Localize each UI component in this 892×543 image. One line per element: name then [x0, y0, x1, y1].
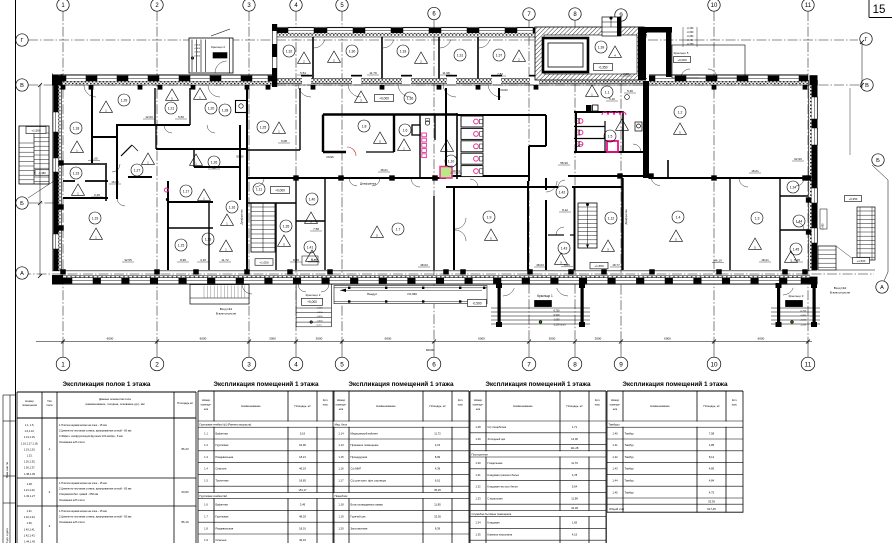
- svg-text:1.30: 1.30: [475, 461, 481, 465]
- svg-text:Тамбур: Тамбур: [625, 431, 635, 435]
- svg-text:А: А: [20, 271, 24, 277]
- svg-text:С/у ММГ: С/у ММГ: [351, 467, 362, 471]
- svg-text:617,45: 617,45: [707, 507, 716, 511]
- svg-text:-1,480: -1,480: [822, 223, 825, 230]
- svg-text:Процедурная: Процедурная: [351, 455, 368, 459]
- svg-text:+0,000: +0,000: [789, 302, 799, 306]
- svg-text:1.31: 1.31: [457, 53, 464, 57]
- svg-text:18,01: 18,01: [299, 526, 306, 530]
- svg-text:18,01: 18,01: [751, 169, 759, 173]
- svg-text:-1,200: -1,200: [800, 324, 807, 326]
- svg-text:-0,600: -0,600: [687, 39, 694, 42]
- svg-text:12,00: 12,00: [145, 115, 153, 119]
- svg-text:11,85: 11,85: [434, 503, 441, 507]
- svg-text:Г: Г: [864, 37, 867, 43]
- svg-text:18,77: 18,77: [612, 263, 620, 267]
- svg-text:ния: ния: [339, 408, 344, 411]
- svg-text:1.41: 1.41: [307, 245, 314, 249]
- svg-text:1.2: 1.2: [678, 110, 683, 114]
- svg-text:СМ16: СМ16: [326, 155, 334, 159]
- svg-text:1,65: 1,65: [572, 521, 578, 525]
- svg-text:16,66: 16,66: [111, 180, 119, 184]
- svg-text:+0,000: +0,000: [379, 96, 389, 100]
- svg-text:1.26,1.35,: 1.26,1.35,: [24, 460, 36, 464]
- svg-text:1.6: 1.6: [403, 128, 408, 132]
- svg-text:Пандус: Пандус: [367, 292, 378, 296]
- svg-text:Экспликация помещений 1 этажа: Экспликация помещений 1 этажа: [348, 380, 454, 388]
- svg-text:18,01: 18,01: [380, 168, 388, 172]
- svg-text:Крыльцо 4: Крыльцо 4: [211, 45, 225, 49]
- svg-text:11: 11: [805, 3, 812, 9]
- svg-text:Стиральная: Стиральная: [488, 497, 504, 501]
- svg-text:Групповая ячейка №1 (Раннего в: Групповая ячейка №1 (Раннего возраста): [200, 423, 252, 427]
- svg-text:1.20: 1.20: [208, 106, 215, 110]
- svg-text:1.34: 1.34: [475, 521, 481, 525]
- svg-text:-0,150: -0,150: [194, 45, 201, 47]
- svg-text:6000: 6000: [107, 337, 114, 341]
- svg-text:1.34: 1.34: [790, 185, 797, 189]
- svg-text:Номер: Номер: [202, 398, 211, 402]
- svg-text:1.36: 1.36: [407, 96, 414, 100]
- svg-text:32,55: 32,55: [434, 515, 441, 519]
- svg-text:Групповая ячейка №2: Групповая ячейка №2: [200, 494, 228, 498]
- svg-text:Кладовая: Кладовая: [488, 521, 501, 525]
- svg-text:1.18: 1.18: [73, 126, 80, 130]
- svg-text:8: 8: [573, 361, 577, 368]
- svg-text:5,54: 5,54: [300, 71, 306, 75]
- svg-text:5,50: 5,50: [178, 115, 184, 119]
- svg-text:1.13: 1.13: [205, 237, 212, 241]
- svg-text:8,12: 8,12: [709, 455, 715, 459]
- svg-text:1.27: 1.27: [134, 168, 141, 172]
- svg-text:3.Эйфол- изофрусоляция Щучинок: 3.Эйфол- изофрусоляция Щучинок 100 мойра…: [59, 434, 123, 438]
- svg-text:Площадь, м²: Площадь, м²: [430, 404, 446, 408]
- svg-text:Раздевальная: Раздевальная: [216, 455, 234, 459]
- svg-text:5,36: 5,36: [627, 89, 633, 93]
- svg-text:3000: 3000: [316, 337, 323, 341]
- svg-text:-0,750: -0,750: [553, 311, 560, 313]
- svg-text:5,54: 5,54: [572, 485, 578, 489]
- svg-text:5,85: 5,85: [311, 258, 317, 262]
- svg-text:Постирочная: Постирочная: [472, 452, 489, 456]
- svg-text:Площадь, м²: Площадь, м²: [295, 404, 311, 408]
- svg-text:1.2: 1.2: [204, 443, 208, 447]
- svg-text:+1,500: +1,500: [31, 128, 41, 132]
- svg-text:10: 10: [711, 3, 718, 9]
- svg-text:Основание ж/б плита: Основание ж/б плита: [59, 440, 85, 444]
- svg-text:Площадь,м²: Площадь,м²: [177, 401, 193, 405]
- svg-text:Диафрагма: Диафрагма: [624, 209, 628, 224]
- svg-text:ния: ния: [204, 408, 209, 411]
- svg-text:Крыльцо 5: Крыльцо 5: [674, 51, 689, 55]
- svg-text:1.4: 1.4: [204, 467, 208, 471]
- svg-text:Групповая: Групповая: [216, 515, 229, 519]
- svg-text:62,96: 62,96: [794, 157, 802, 161]
- svg-text:Буфетная: Буфетная: [216, 431, 229, 435]
- svg-text:35,26: 35,26: [434, 488, 441, 492]
- svg-text:18,21: 18,21: [761, 258, 769, 262]
- svg-text:Данные элементов пола: Данные элементов пола: [99, 397, 131, 401]
- svg-text:СМ10: СМ10: [500, 88, 508, 92]
- svg-text:+0,000: +0,000: [307, 300, 317, 304]
- svg-text:ния: ния: [613, 408, 618, 411]
- svg-text:7,82: 7,82: [497, 72, 503, 76]
- svg-text:58,39: 58,39: [560, 161, 568, 165]
- svg-text:7,58: 7,58: [313, 227, 319, 231]
- svg-text:1.6,1.10,: 1.6,1.10,: [24, 429, 34, 433]
- svg-text:4,75: 4,75: [709, 490, 715, 494]
- svg-text:В виктопольне: В виктопольне: [830, 291, 851, 295]
- svg-text:1.1: 1.1: [204, 431, 208, 435]
- svg-text:Тамбур: Тамбур: [625, 443, 635, 447]
- svg-text:-0,900: -0,900: [553, 315, 560, 317]
- svg-text:11,72: 11,72: [434, 431, 441, 435]
- svg-text:10,74: 10,74: [452, 169, 460, 173]
- svg-text:-1,050: -1,050: [800, 320, 807, 322]
- svg-text:Спальня: Спальня: [216, 467, 227, 471]
- svg-text:Блок охлаждаемых камер: Блок охлаждаемых камер: [351, 503, 384, 507]
- svg-text:3000: 3000: [269, 337, 276, 341]
- svg-text:1.4: 1.4: [676, 215, 681, 219]
- svg-text:помещения: помещения: [22, 403, 37, 407]
- svg-text:Кол.: Кол.: [732, 398, 738, 402]
- svg-text:Служебно-бытовые помещения: Служебно-бытовые помещения: [472, 512, 512, 516]
- svg-text:1.29: 1.29: [475, 437, 481, 441]
- svg-text:48,03: 48,03: [299, 515, 306, 519]
- svg-text:7,58: 7,58: [709, 431, 715, 435]
- svg-text:Мед. блок: Мед. блок: [335, 423, 348, 427]
- svg-text:11,05: 11,05: [90, 157, 98, 161]
- svg-text:Г: Г: [20, 38, 23, 44]
- svg-text:Тамбуры: Тамбуры: [609, 423, 620, 427]
- svg-text:-0,900: -0,900: [800, 315, 807, 317]
- svg-text:+0,950: +0,950: [849, 197, 858, 201]
- svg-text:1.Плитка керамическая на клее: 1.Плитка керамическая на клее - 15 мм: [59, 481, 107, 485]
- svg-text:1.43: 1.43: [612, 467, 618, 471]
- svg-text:Тамбур: Тамбур: [625, 455, 635, 459]
- svg-text:1.32: 1.32: [475, 485, 481, 489]
- svg-text:2.Цементно-песчаная стяжка, ар: 2.Цементно-песчаная стяжка, армированная…: [59, 487, 132, 491]
- svg-text:-0,500: -0,500: [472, 301, 481, 305]
- svg-text:1,71: 1,71: [572, 425, 578, 429]
- svg-text:+0,000: +0,000: [677, 58, 687, 62]
- svg-text:пом.: пом.: [458, 404, 464, 407]
- svg-text:С/у для прип. физ. раствора: С/у для прип. физ. раствора: [351, 479, 387, 483]
- svg-text:Кладовая чистого белья: Кладовая чистого белья: [488, 485, 519, 489]
- svg-text:1.16: 1.16: [229, 205, 236, 209]
- svg-text:1.42,1.43,: 1.42,1.43,: [24, 533, 36, 537]
- svg-text:1.44,1.45: 1.44,1.45: [24, 540, 35, 543]
- svg-text:1.5: 1.5: [204, 479, 208, 483]
- svg-text:1.3: 1.3: [204, 455, 208, 459]
- svg-text:2.Цементно-песчаная стяжка, ар: 2.Цементно-песчаная стяжка, армированная…: [59, 429, 132, 433]
- svg-text:-0,750: -0,750: [687, 43, 694, 46]
- svg-text:1.45: 1.45: [612, 490, 618, 494]
- svg-text:4,78: 4,78: [572, 473, 578, 477]
- svg-text:11,98: 11,98: [571, 497, 578, 501]
- svg-text:3,49: 3,49: [300, 503, 306, 507]
- svg-text:Основание ж/б плита: Основание ж/б плита: [59, 520, 85, 524]
- svg-text:4,15: 4,15: [572, 533, 578, 537]
- svg-text:Наименование: Наименование: [513, 404, 533, 408]
- svg-text:1.40: 1.40: [309, 197, 316, 201]
- svg-text:-0,480: -0,480: [38, 171, 46, 175]
- svg-text:1.17: 1.17: [183, 189, 190, 193]
- svg-text:1.23: 1.23: [73, 171, 80, 175]
- svg-text:-0,300: -0,300: [317, 312, 324, 314]
- svg-text:1.35: 1.35: [475, 533, 481, 537]
- svg-text:Медицинский кабинет: Медицинский кабинет: [351, 431, 379, 435]
- svg-text:1.19: 1.19: [92, 216, 99, 220]
- svg-text:-0,450: -0,450: [194, 52, 201, 54]
- svg-text:1.9: 1.9: [204, 538, 208, 542]
- svg-text:(наименование, толщина, основа: (наименование, толщина, основание др.), …: [85, 402, 144, 406]
- svg-text:18,65: 18,65: [299, 479, 306, 483]
- svg-text:1.19: 1.19: [338, 515, 344, 519]
- svg-text:Кол.: Кол.: [323, 398, 329, 402]
- svg-text:2.Цементно-песчаная стяжка, ар: 2.Цементно-песчаная стяжка, армированная…: [59, 515, 132, 519]
- svg-text:-0,600: -0,600: [194, 55, 201, 57]
- svg-text:4,15: 4,15: [200, 258, 206, 262]
- svg-text:Тамбур: Тамбур: [625, 467, 635, 471]
- svg-text:Б: Б: [20, 201, 24, 207]
- svg-text:1.25: 1.25: [260, 125, 267, 129]
- svg-text:1.26: 1.26: [211, 160, 218, 164]
- svg-text:3000: 3000: [595, 337, 602, 341]
- svg-text:1.28: 1.28: [475, 425, 481, 429]
- svg-text:-0,750: -0,750: [800, 311, 807, 313]
- svg-text:111,28: 111,28: [571, 446, 579, 450]
- svg-text:Площадь, м²: Площадь, м²: [704, 404, 720, 408]
- svg-text:Номер: Номер: [337, 398, 346, 402]
- svg-text:8,12: 8,12: [562, 208, 568, 212]
- svg-text:6: 6: [432, 361, 436, 368]
- svg-text:Буфетная: Буфетная: [216, 503, 229, 507]
- svg-text:Тамбур: Тамбур: [625, 479, 635, 483]
- svg-text:3.Керамзитобет. гравий - 650 м: 3.Керамзитобет. гравий - 650 мм: [59, 492, 98, 496]
- svg-text:6,01: 6,01: [435, 479, 441, 483]
- svg-text:1.33: 1.33: [400, 49, 407, 53]
- svg-text:Крыльцо 3: Крыльцо 3: [789, 294, 804, 298]
- svg-text:5: 5: [340, 361, 344, 368]
- svg-text:1.32: 1.32: [286, 49, 293, 53]
- svg-text:1.31: 1.31: [475, 473, 481, 477]
- svg-text:11,79: 11,79: [369, 71, 377, 75]
- svg-text:±0,000: ±0,000: [538, 302, 547, 306]
- svg-text:Холодный цех: Холодный цех: [488, 437, 506, 441]
- svg-text:6,08: 6,08: [281, 139, 287, 143]
- svg-text:18,21: 18,21: [299, 455, 306, 459]
- svg-text:+1,650: +1,650: [594, 264, 604, 268]
- svg-text:Пищеблок: Пищеблок: [335, 494, 349, 498]
- svg-text:1.41: 1.41: [612, 443, 618, 447]
- svg-text:1.42: 1.42: [612, 455, 618, 459]
- svg-text:1.7: 1.7: [204, 515, 208, 519]
- svg-text:1.36,: 1.36,: [27, 521, 33, 525]
- svg-text:1.21,1.22,: 1.21,1.22,: [24, 488, 36, 492]
- svg-text:Горячий цех: Горячий цех: [351, 515, 367, 519]
- svg-text:Приемное помещение: Приемное помещение: [351, 443, 379, 447]
- svg-text:С/у пищеблока: С/у пищеблока: [488, 425, 507, 429]
- svg-text:Крыльцо 2: Крыльцо 2: [306, 293, 321, 297]
- svg-text:Взам. инв. №: Взам. инв. №: [5, 462, 9, 478]
- svg-text:i=0,060: i=0,060: [407, 292, 417, 296]
- svg-text:1.8: 1.8: [204, 526, 208, 530]
- svg-text:34,09: 34,09: [571, 506, 578, 510]
- svg-text:Общий итог: Общий итог: [609, 507, 624, 511]
- svg-text:Экспликация помещений 1 этажа: Экспликация помещений 1 этажа: [622, 380, 728, 388]
- svg-text:Наименование: Наименование: [650, 404, 670, 408]
- svg-text:Кол.: Кол.: [458, 398, 464, 402]
- svg-text:1.15: 1.15: [338, 455, 344, 459]
- svg-text:пом.: пом.: [595, 404, 601, 407]
- svg-text:1.7: 1.7: [396, 227, 401, 231]
- svg-text:1.Плитка керамическая на клее: 1.Плитка керамическая на клее - 15 мм: [59, 423, 107, 427]
- svg-text:7: 7: [527, 361, 531, 368]
- svg-text:1.40: 1.40: [612, 431, 618, 435]
- svg-text:помеще-: помеще-: [610, 404, 621, 407]
- svg-text:5,16: 5,16: [300, 431, 306, 435]
- svg-text:гр.пл.: гр.пл.: [317, 325, 323, 327]
- svg-text:Комната персонала: Комната персонала: [488, 533, 513, 537]
- svg-text:1.32,1.34,: 1.32,1.34,: [24, 515, 36, 519]
- svg-text:1.33,1.27: 1.33,1.27: [24, 494, 35, 498]
- svg-text:Диафрагма: Диафрагма: [360, 182, 376, 186]
- svg-text:86,43: 86,43: [182, 447, 189, 451]
- svg-text:+1,500: +1,500: [857, 259, 866, 263]
- svg-text:-0,300: -0,300: [194, 48, 201, 50]
- svg-text:1.33: 1.33: [475, 497, 481, 501]
- svg-text:8,55: 8,55: [293, 258, 299, 262]
- svg-text:1.43: 1.43: [561, 246, 568, 250]
- svg-text:6,05: 6,05: [564, 263, 570, 267]
- svg-text:6,39: 6,39: [94, 193, 100, 197]
- svg-text:48,03: 48,03: [420, 263, 428, 267]
- svg-text:1.13: 1.13: [338, 443, 344, 447]
- svg-text:помеще-: помеще-: [201, 404, 212, 407]
- svg-text:ния: ния: [476, 408, 481, 411]
- svg-text:63,83: 63,83: [182, 490, 189, 494]
- svg-text:1.19,1.20,: 1.19,1.20,: [24, 447, 36, 451]
- svg-text:Экспликация помещений 1 этажа: Экспликация помещений 1 этажа: [213, 380, 319, 388]
- svg-text:1.14: 1.14: [338, 431, 344, 435]
- svg-text:4,39: 4,39: [435, 467, 441, 471]
- svg-text:1.40,1.41,: 1.40,1.41,: [24, 527, 36, 531]
- svg-text:9: 9: [619, 361, 623, 368]
- svg-text:Вход №1: Вход №1: [220, 307, 233, 311]
- svg-text:Площадь, м²: Площадь, м²: [567, 404, 583, 408]
- svg-text:Б: Б: [876, 158, 880, 164]
- svg-text:пом.: пом.: [732, 404, 738, 407]
- svg-text:Кладовая грязного белья: Кладовая грязного белья: [488, 473, 520, 477]
- svg-text:±0,000: ±0,000: [216, 54, 225, 58]
- svg-text:1.6: 1.6: [204, 503, 208, 507]
- svg-text:Вход №2: Вход №2: [834, 286, 847, 290]
- svg-text:помеще-: помеще-: [473, 404, 484, 407]
- svg-text:1.28: 1.28: [222, 108, 229, 112]
- svg-text:1.12: 1.12: [608, 216, 615, 220]
- svg-text:1.13,1.15,: 1.13,1.15,: [24, 435, 36, 439]
- svg-text:1.11: 1.11: [256, 187, 262, 191]
- svg-text:11,79: 11,79: [571, 461, 578, 465]
- svg-text:Тамбур: Тамбур: [625, 490, 635, 494]
- svg-text:Экспликация помещений 1 этажа: Экспликация помещений 1 этажа: [485, 380, 591, 388]
- svg-text:-0,450: -0,450: [317, 316, 324, 318]
- svg-text:1.1, 1.5,: 1.1, 1.5,: [25, 423, 35, 427]
- svg-text:3: 3: [247, 361, 251, 368]
- svg-text:1.31,: 1.31,: [27, 509, 33, 513]
- svg-text:4,85: 4,85: [709, 467, 715, 471]
- svg-text:В: В: [20, 83, 24, 89]
- svg-text:4,15: 4,15: [435, 443, 441, 447]
- svg-text:1.9: 1.9: [487, 215, 492, 219]
- svg-text:Раздевальная: Раздевальная: [216, 526, 234, 530]
- svg-text:12,06: 12,06: [571, 437, 578, 441]
- svg-text:1.16: 1.16: [338, 467, 344, 471]
- svg-text:4,85: 4,85: [709, 443, 715, 447]
- svg-text:Спальня: Спальня: [216, 538, 227, 542]
- svg-text:-0,600: -0,600: [317, 320, 324, 322]
- svg-text:46,19: 46,19: [299, 538, 306, 542]
- svg-text:-1,050: -1,050: [553, 320, 560, 322]
- svg-text:3000: 3000: [549, 337, 556, 341]
- svg-text:8,39: 8,39: [435, 526, 441, 530]
- svg-text:6000: 6000: [478, 337, 485, 341]
- svg-text:1.44: 1.44: [796, 219, 803, 223]
- svg-text:Наименование: Наименование: [376, 404, 396, 408]
- svg-text:ЕП30: ЕП30: [237, 155, 244, 159]
- svg-text:4: 4: [294, 361, 298, 368]
- svg-text:-0,150: -0,150: [317, 308, 324, 310]
- svg-text:48,03: 48,03: [536, 263, 544, 267]
- svg-text:+1,050: +1,050: [259, 260, 269, 264]
- svg-text:1.44: 1.44: [612, 479, 618, 483]
- svg-text:8,99: 8,99: [180, 258, 186, 262]
- svg-text:1.15: 1.15: [178, 243, 185, 247]
- svg-text:Гладильная: Гладильная: [488, 461, 503, 465]
- svg-text:1.21: 1.21: [168, 106, 175, 110]
- svg-text:8,99: 8,99: [435, 455, 441, 459]
- svg-text:1.37: 1.37: [496, 53, 503, 57]
- svg-text:33,39: 33,39: [708, 500, 715, 504]
- svg-text:В виктопольне: В виктопольне: [216, 312, 237, 316]
- svg-text:Номер: Номер: [474, 398, 483, 402]
- svg-text:Наименование: Наименование: [241, 404, 261, 408]
- svg-text:2,98: 2,98: [623, 72, 629, 76]
- svg-text:1.5: 1.5: [608, 134, 613, 138]
- svg-text:32,55: 32,55: [124, 258, 132, 262]
- svg-text:1.23,: 1.23,: [27, 454, 33, 458]
- svg-text:-0,350: -0,350: [598, 65, 607, 69]
- svg-text:15: 15: [873, 4, 886, 16]
- svg-text:1.39: 1.39: [598, 45, 605, 49]
- svg-text:Крыльцо 1: Крыльцо 1: [537, 294, 553, 298]
- svg-text:-0,450: -0,450: [687, 35, 694, 38]
- svg-text:пола: пола: [46, 403, 53, 407]
- svg-text:6000: 6000: [385, 337, 392, 341]
- svg-text:Диафрагма: Диафрагма: [240, 209, 244, 224]
- svg-text:-0,300: -0,300: [687, 31, 694, 34]
- svg-text:1.35: 1.35: [283, 224, 290, 228]
- svg-text:Кол.: Кол.: [595, 398, 601, 402]
- svg-text:Подп. и дата: Подп. и дата: [5, 528, 9, 543]
- svg-text:10: 10: [710, 361, 718, 368]
- svg-text:151,17: 151,17: [298, 488, 307, 492]
- svg-text:1.20: 1.20: [338, 526, 344, 530]
- svg-text:1.8: 1.8: [362, 124, 367, 128]
- svg-text:1.3: 1.3: [755, 216, 760, 220]
- svg-text:1.45: 1.45: [793, 247, 800, 251]
